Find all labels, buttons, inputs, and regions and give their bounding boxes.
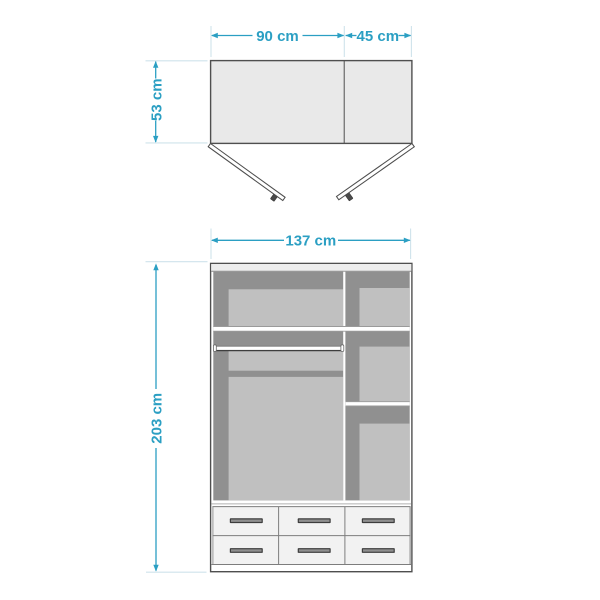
svg-text:137 cm: 137 cm: [285, 233, 336, 250]
svg-text:203 cm: 203 cm: [149, 393, 166, 444]
svg-text:90 cm: 90 cm: [256, 28, 299, 45]
svg-text:53 cm: 53 cm: [149, 78, 166, 121]
svg-text:45 cm: 45 cm: [357, 28, 400, 45]
